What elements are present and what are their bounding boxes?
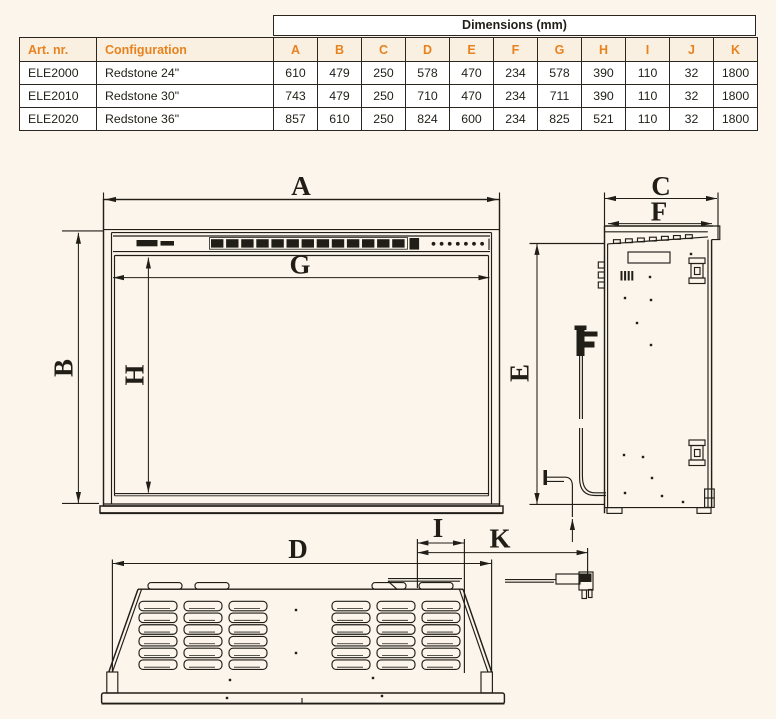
- side-vent-slots: [621, 271, 634, 281]
- power-button: [410, 238, 420, 250]
- mounting-bracket-upper: [689, 258, 705, 284]
- dim-label-b: B: [49, 359, 79, 377]
- dim-label-e: E: [505, 364, 535, 382]
- dim-label-h: H: [120, 364, 150, 385]
- bottom-power-cord: [388, 579, 556, 590]
- side-foot-rear: [697, 508, 711, 514]
- front-edge-tabs: [598, 262, 604, 288]
- dim-label-g: G: [289, 250, 310, 280]
- brand-logo: [137, 240, 158, 246]
- top-pad: [148, 583, 182, 590]
- stored-power-plug: [575, 326, 598, 357]
- front-louver-slots: [211, 239, 405, 247]
- top-pad: [195, 583, 229, 590]
- front-control-dots: [432, 242, 484, 246]
- dim-label-i: I: [433, 513, 444, 543]
- power-cord: [580, 356, 606, 496]
- front-plinth: [100, 506, 503, 513]
- dim-label-d: D: [288, 534, 308, 564]
- screw-dots: [623, 253, 692, 503]
- base-foot-right: [481, 672, 492, 693]
- dim-label-k: K: [489, 524, 510, 554]
- side-foot-front: [607, 508, 622, 514]
- rear-louvers: [139, 601, 460, 669]
- bottom-power-plug: [556, 572, 593, 599]
- mounting-bracket-lower: [689, 440, 705, 466]
- side-top-tabs: [614, 235, 693, 244]
- side-view-drawing: C F: [505, 171, 720, 542]
- front-view-drawing: A: [49, 171, 504, 513]
- top-pad: [372, 583, 406, 590]
- bottom-view-drawing: D I K: [102, 513, 593, 704]
- dim-label-a: A: [291, 171, 311, 201]
- top-louver-slant: [608, 237, 708, 244]
- base-plate: [102, 693, 505, 704]
- technical-drawing: A: [0, 0, 776, 719]
- base-foot-left: [107, 672, 118, 693]
- rating-label-plate: [628, 252, 670, 263]
- dim-label-f: F: [651, 197, 668, 227]
- top-pad: [419, 583, 453, 590]
- cord-exit-fitting: [544, 470, 573, 542]
- spec-sheet: Dimensions (mm) Art. nr. Configuration A…: [0, 0, 776, 719]
